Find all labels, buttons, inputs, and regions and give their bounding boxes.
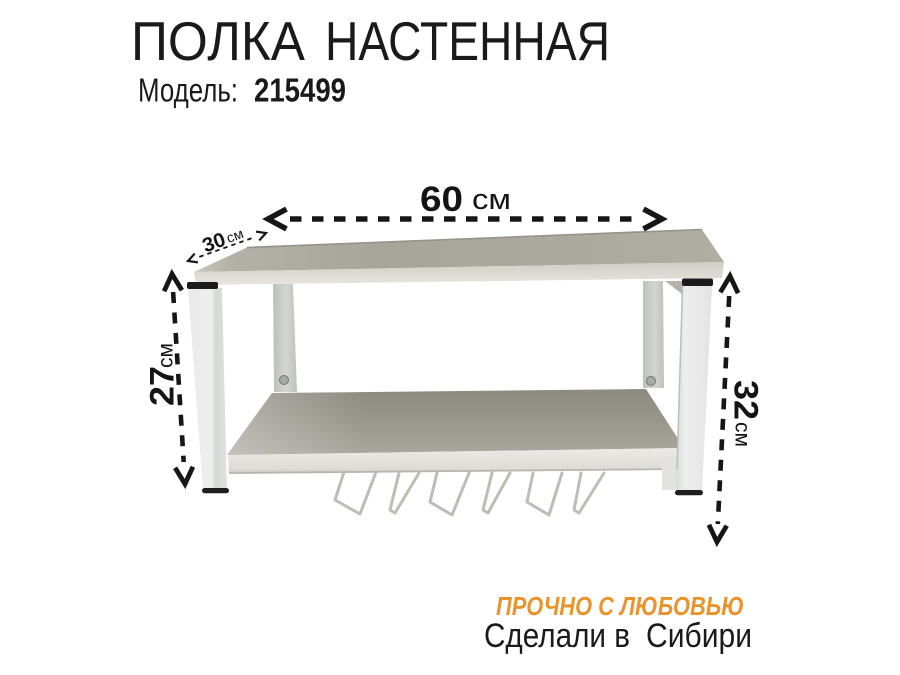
svg-text:Сибири: Сибири [646, 617, 752, 655]
svg-text:см: см [155, 343, 178, 368]
svg-text:ПОЛКА: ПОЛКА [131, 10, 305, 72]
svg-text:см: см [224, 225, 245, 246]
svg-text:27: 27 [144, 366, 182, 406]
svg-text:см: см [472, 184, 511, 216]
svg-text:32: 32 [727, 380, 765, 420]
svg-text:215499: 215499 [254, 72, 346, 109]
svg-text:60: 60 [420, 180, 463, 219]
svg-text:Модель:: Модель: [138, 72, 238, 109]
svg-text:Сделали в: Сделали в [484, 617, 630, 655]
svg-text:НАСТЕННАЯ: НАСТЕННАЯ [325, 10, 610, 72]
svg-text:см: см [731, 422, 754, 447]
